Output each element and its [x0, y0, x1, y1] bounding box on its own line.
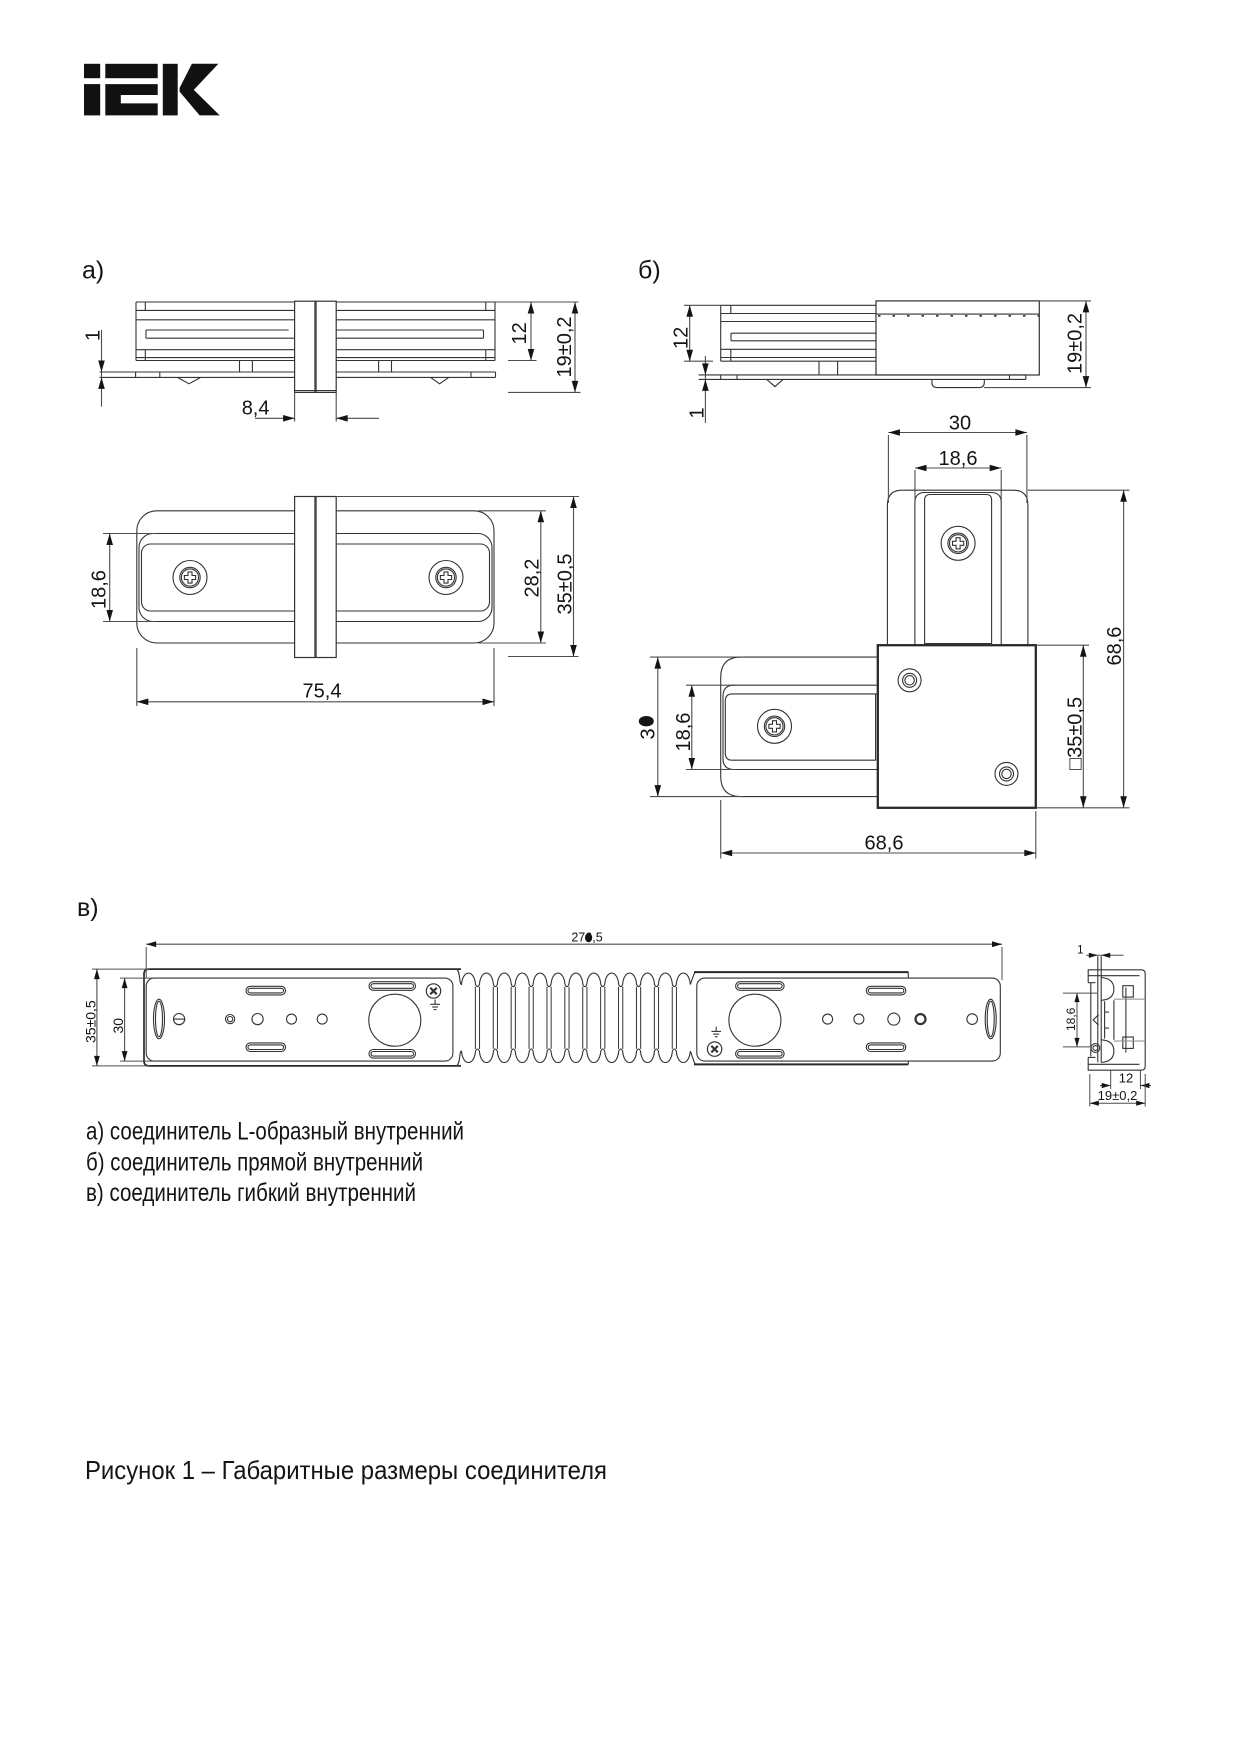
svg-text:1: 1: [687, 407, 709, 418]
svg-text:18,6: 18,6: [673, 713, 695, 752]
svg-text:12: 12: [671, 327, 693, 349]
svg-text:68,6: 68,6: [1104, 627, 1126, 666]
svg-text:30: 30: [110, 1018, 126, 1034]
svg-text:8,4: 8,4: [242, 398, 270, 420]
svg-text:□35±0,5: □35±0,5: [1065, 697, 1087, 770]
svg-text:28,2: 28,2: [522, 559, 544, 598]
svg-text:12: 12: [1119, 1070, 1133, 1085]
svg-text:35±0,5: 35±0,5: [555, 553, 577, 614]
svg-text:1: 1: [83, 330, 105, 341]
svg-text:а) соединитель L-образный внут: а) соединитель L-образный внутренний: [86, 1117, 464, 1145]
svg-text:б) соединитель прямой внутренн: б) соединитель прямой внутренний: [86, 1148, 423, 1176]
svg-text:Рисунок 1 – Габаритные размеры: Рисунок 1 – Габаритные размеры соедините…: [85, 1455, 607, 1485]
svg-text:18,6: 18,6: [1064, 1007, 1078, 1031]
svg-text:18,6: 18,6: [89, 570, 111, 609]
svg-text:б): б): [638, 257, 661, 285]
svg-text:30: 30: [949, 413, 971, 435]
svg-text:35±0,5: 35±0,5: [82, 1000, 98, 1043]
svg-text:12: 12: [509, 322, 531, 344]
svg-text:19±0,2: 19±0,2: [1098, 1088, 1138, 1103]
svg-text:68,6: 68,6: [865, 833, 904, 855]
svg-text:в): в): [77, 894, 99, 922]
svg-text:в) соединитель гибкий внутренн: в) соединитель гибкий внутренний: [86, 1179, 416, 1207]
svg-text:19±0,2: 19±0,2: [554, 316, 576, 377]
svg-text:18,6: 18,6: [939, 448, 978, 470]
svg-text:1: 1: [1077, 945, 1083, 957]
svg-text:75,4: 75,4: [303, 681, 342, 703]
svg-text:3: 3: [637, 728, 659, 739]
svg-text:19±0,2: 19±0,2: [1065, 313, 1087, 374]
svg-text:а): а): [82, 257, 104, 285]
